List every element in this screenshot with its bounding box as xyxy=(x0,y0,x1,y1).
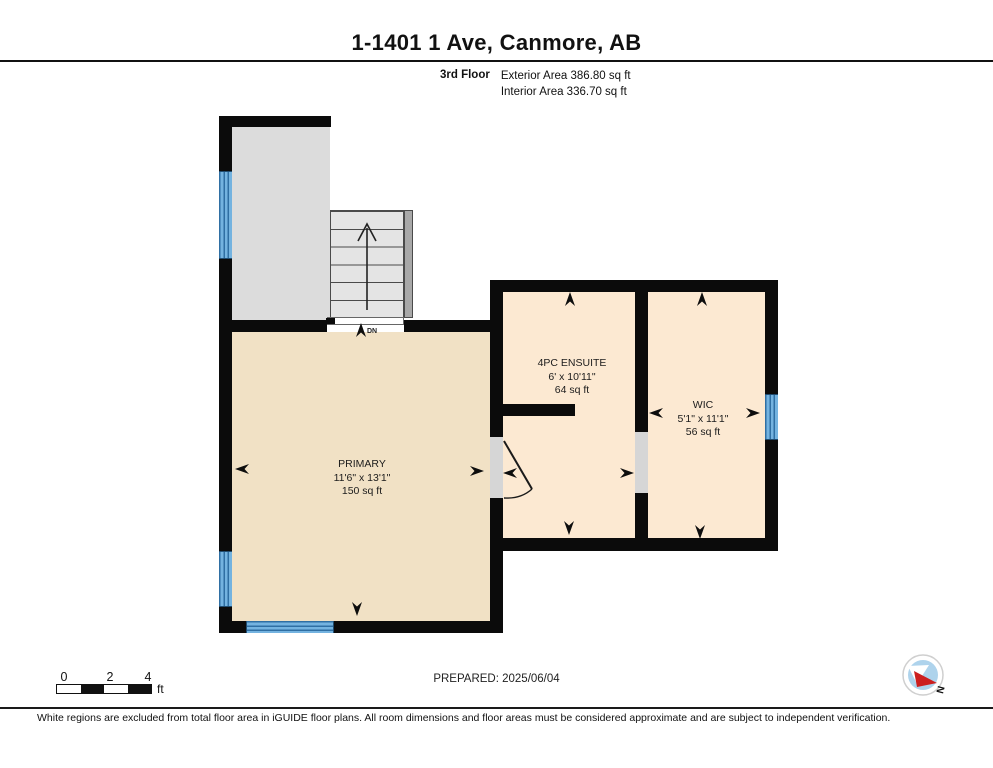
wall-primary-top-right xyxy=(404,320,503,332)
wall-primary-bottom-left xyxy=(219,621,247,633)
scale-segment xyxy=(104,685,128,693)
room-dimensions: 11'6" x 13'1" xyxy=(282,472,442,486)
window-stairwell-left xyxy=(219,171,232,259)
wall-primary-top-left xyxy=(219,320,327,332)
stair-cut-line xyxy=(327,317,404,325)
window-primary-left xyxy=(219,551,232,607)
wall-wic-right-lower xyxy=(765,437,778,551)
wall-stairwell-top xyxy=(219,116,331,127)
wall-ensuite-wic-bottom xyxy=(503,538,778,551)
room-area: 56 sq ft xyxy=(643,426,763,440)
room-dimensions: 6' x 10'11" xyxy=(502,371,642,385)
wall-left-upper xyxy=(219,116,232,173)
room-area: 64 sq ft xyxy=(502,384,642,398)
wall-primary-ensuite-lower xyxy=(490,497,503,633)
window-primary-bottom xyxy=(246,621,334,633)
scale-segment xyxy=(128,685,152,693)
floor-plan: PRIMARY 11'6" x 13'1" 150 sq ft 4PC ENSU… xyxy=(0,0,993,768)
window-wic-right xyxy=(765,394,778,440)
room-label-primary: PRIMARY 11'6" x 13'1" 150 sq ft xyxy=(282,458,442,499)
scale-segment xyxy=(81,685,105,693)
prepared-date: PREPARED: 2025/06/04 xyxy=(0,673,993,685)
room-label-wic: WIC 5'1" x 11'1" 56 sq ft xyxy=(643,399,763,440)
wall-wic-right-upper xyxy=(765,280,778,395)
room-name: WIC xyxy=(643,399,763,413)
wall-primary-bottom-right xyxy=(331,621,503,633)
wall-ensuite-wic-top xyxy=(490,280,778,292)
stairwell-excluded-region xyxy=(232,127,330,321)
scale-segment xyxy=(57,685,81,693)
room-name: PRIMARY xyxy=(282,458,442,472)
wall-primary-left xyxy=(219,320,232,552)
wall-ensuite-stub xyxy=(497,404,575,416)
footer-disclaimer: White regions are excluded from total fl… xyxy=(37,712,967,724)
door-opening-ensuite-wic xyxy=(635,432,648,493)
door-opening-primary-ensuite xyxy=(490,437,503,498)
stairs-down-label: DN xyxy=(367,328,377,335)
room-label-ensuite: 4PC ENSUITE 6' x 10'11" 64 sq ft xyxy=(502,357,642,398)
wall-left-mid xyxy=(219,255,232,322)
room-name: 4PC ENSUITE xyxy=(502,357,642,371)
scale-bar xyxy=(56,684,152,694)
room-area: 150 sq ft xyxy=(282,485,442,499)
stair-cut-tick xyxy=(326,318,335,324)
footer-divider xyxy=(0,707,993,709)
stairs-side-strip xyxy=(404,210,413,318)
stairs xyxy=(330,210,404,318)
room-dimensions: 5'1" x 11'1" xyxy=(643,413,763,427)
